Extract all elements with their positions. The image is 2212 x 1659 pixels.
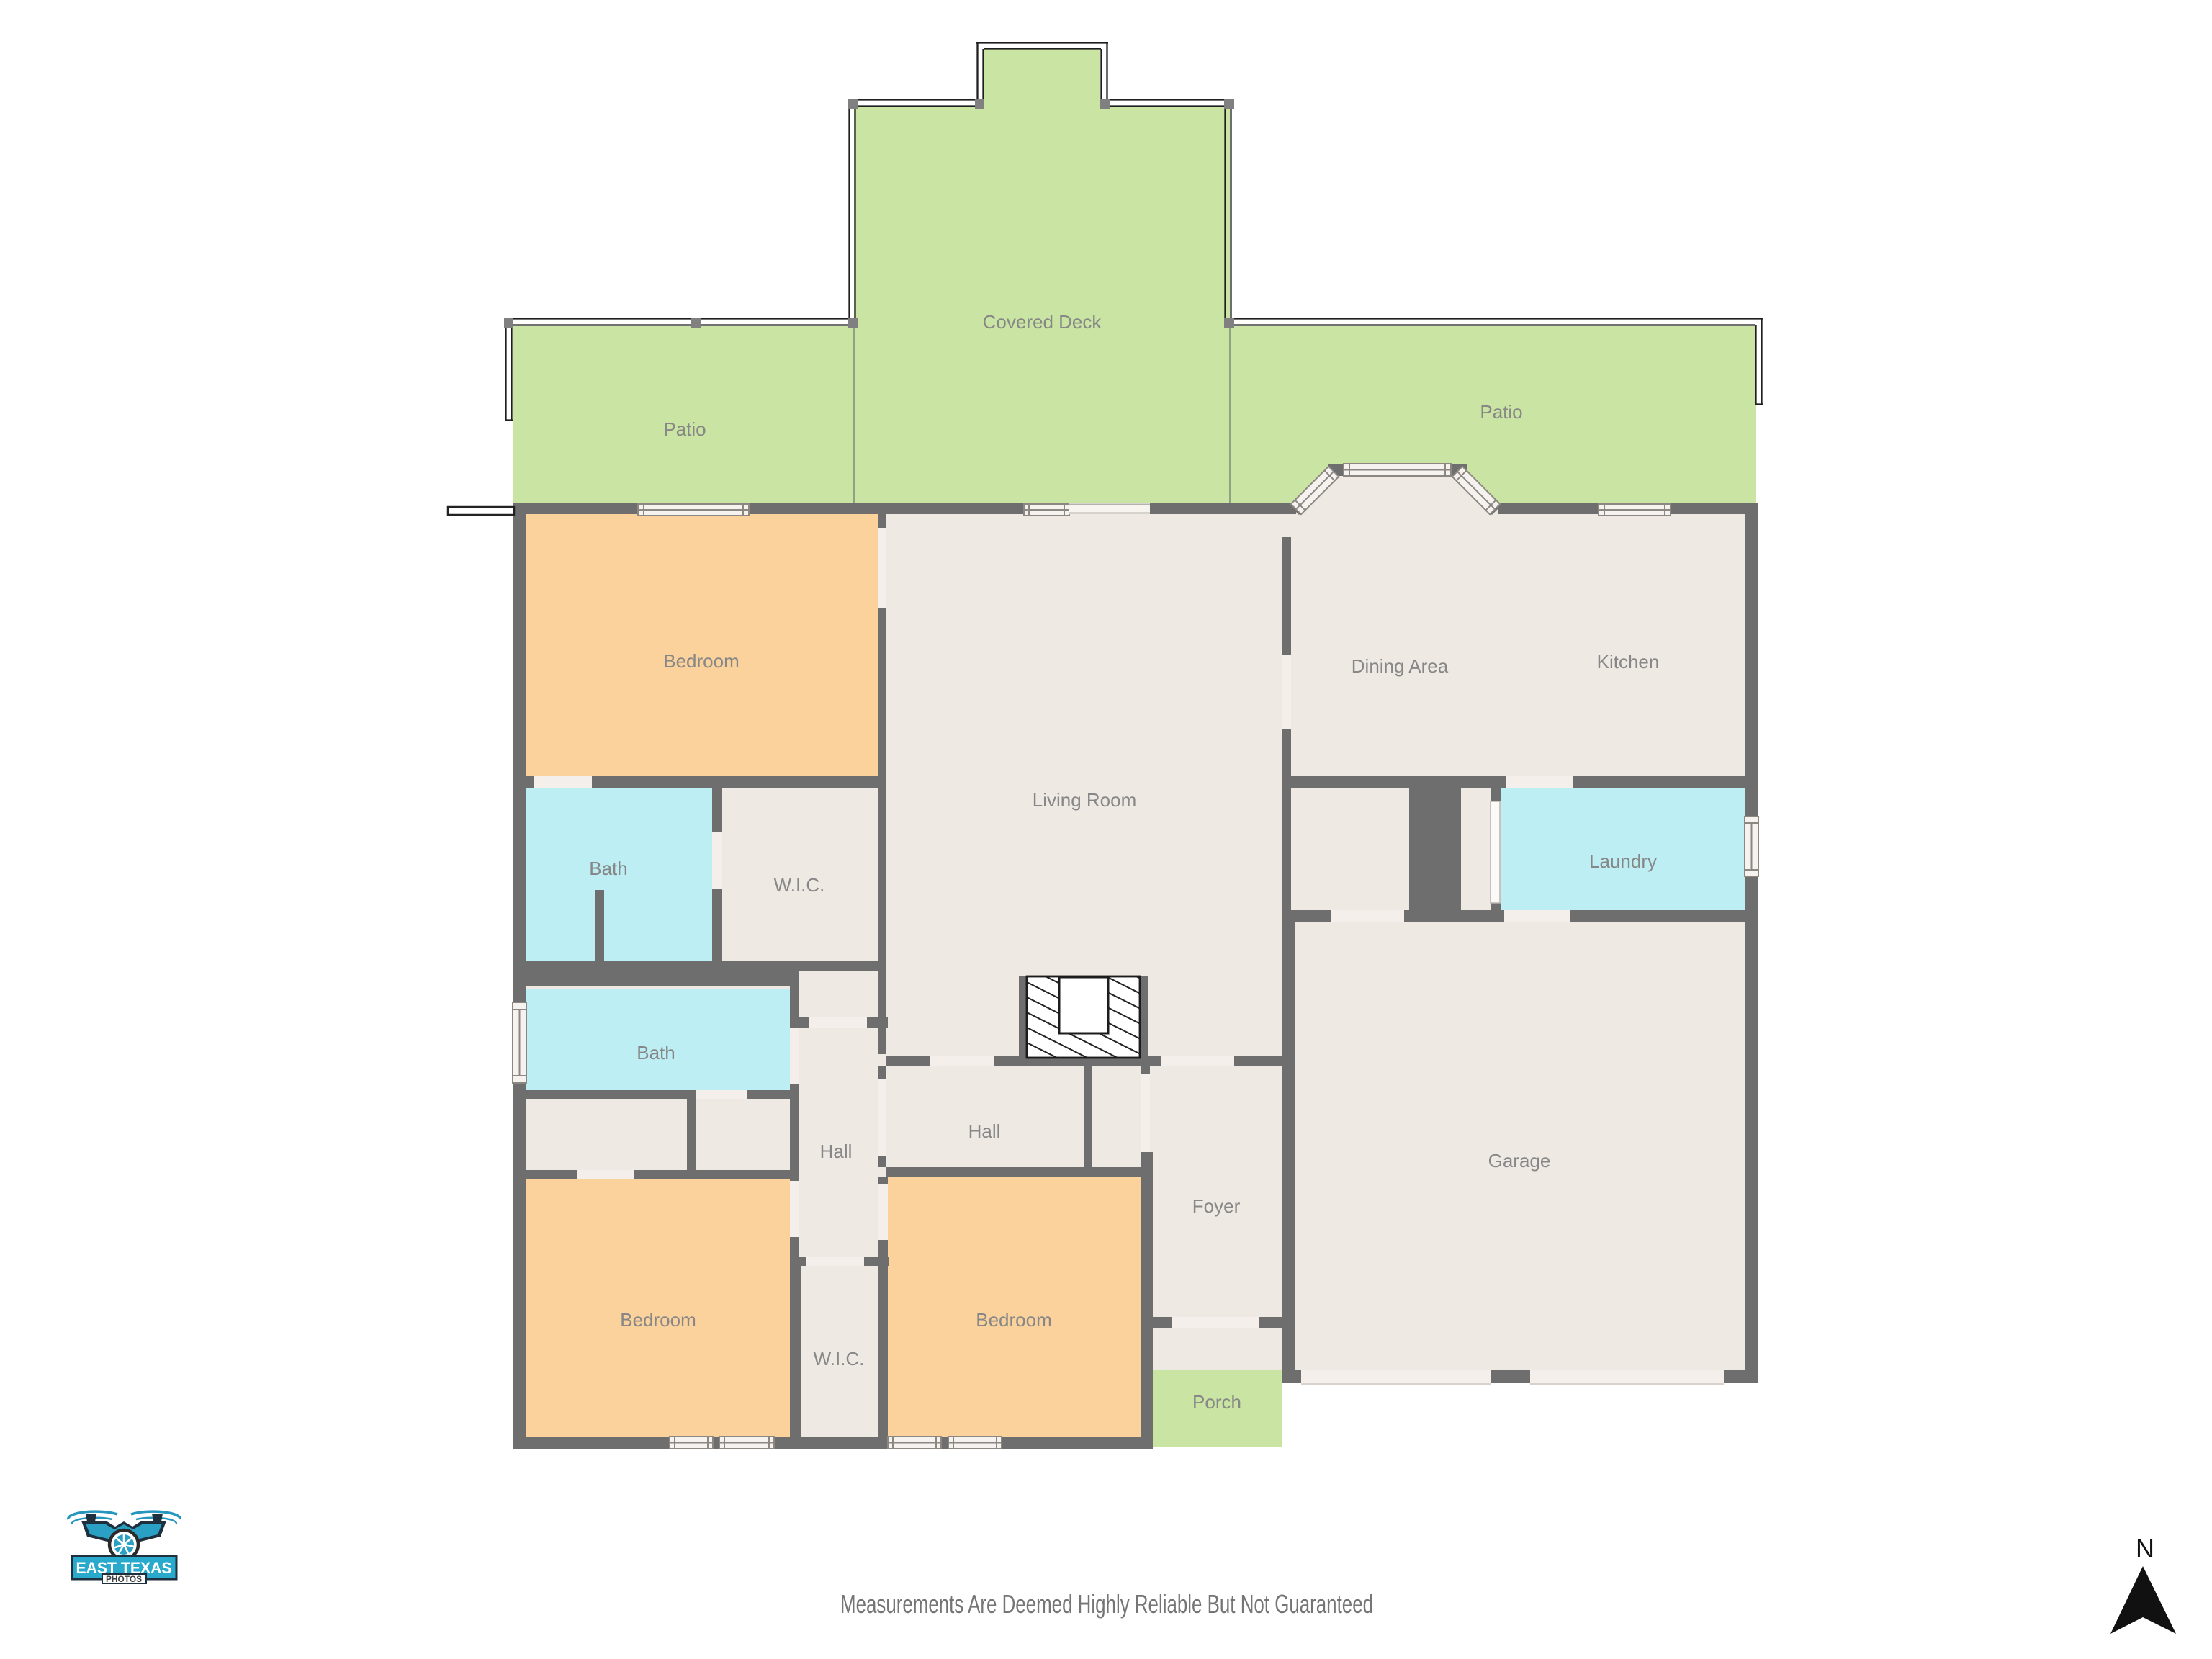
svg-text:Patio: Patio (663, 418, 706, 440)
svg-text:PHOTOS: PHOTOS (106, 1575, 142, 1584)
svg-text:Laundry: Laundry (1589, 850, 1657, 872)
svg-text:Porch: Porch (1192, 1391, 1241, 1413)
svg-text:W.I.C.: W.I.C. (774, 874, 825, 896)
svg-text:N: N (2136, 1534, 2154, 1563)
svg-text:W.I.C.: W.I.C. (814, 1348, 865, 1370)
svg-text:Hall: Hall (968, 1120, 1001, 1142)
svg-text:Dining Area: Dining Area (1352, 655, 1449, 677)
svg-text:Foyer: Foyer (1192, 1195, 1241, 1217)
svg-text:Bedroom: Bedroom (663, 650, 739, 672)
svg-text:Covered Deck: Covered Deck (983, 311, 1102, 333)
svg-text:Bedroom: Bedroom (976, 1309, 1052, 1331)
svg-text:Garage: Garage (1488, 1150, 1551, 1172)
svg-text:Measurements Are Deemed Highly: Measurements Are Deemed Highly Reliable … (840, 1589, 1373, 1619)
svg-text:Patio: Patio (1480, 401, 1522, 423)
svg-text:Kitchen: Kitchen (1597, 651, 1660, 673)
svg-text:Hall: Hall (820, 1141, 853, 1162)
svg-text:Bedroom: Bedroom (620, 1309, 696, 1331)
svg-text:Bath: Bath (637, 1042, 675, 1064)
svg-text:Living Room: Living Room (1033, 789, 1137, 811)
svg-text:Bath: Bath (589, 858, 628, 879)
